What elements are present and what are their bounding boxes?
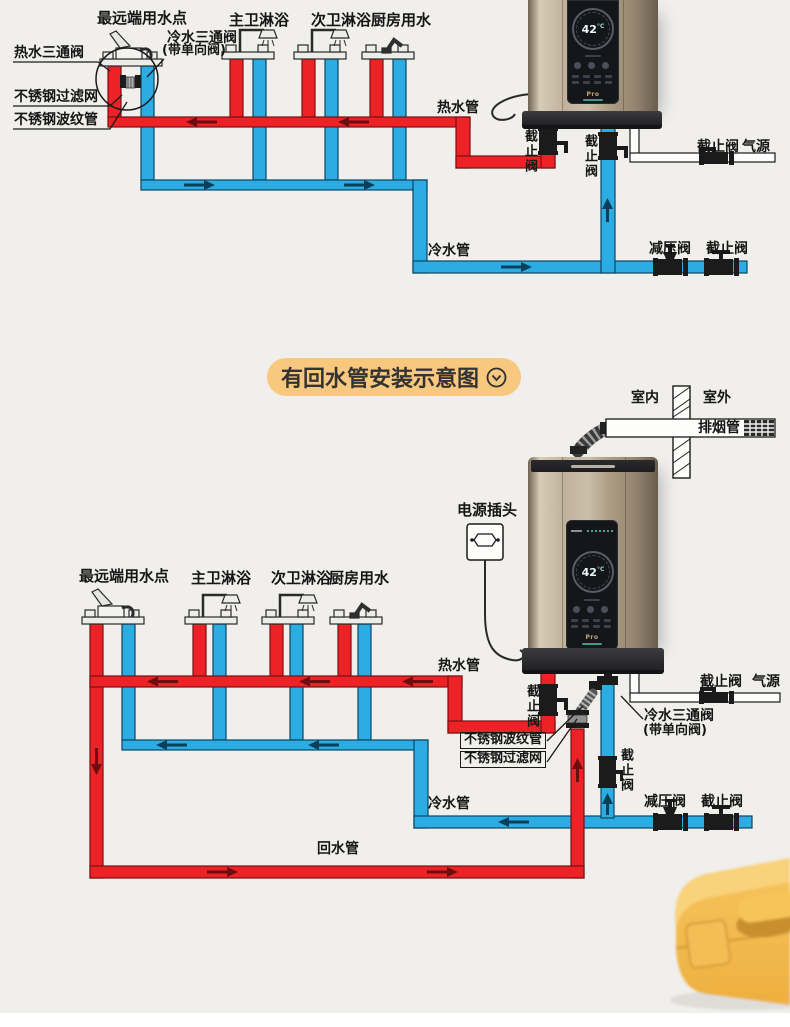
label-second-shower: 次卫淋浴 <box>271 570 331 587</box>
pipes-canvas <box>0 0 790 1027</box>
label-stop-valve-hot: 截止阀 <box>521 129 536 174</box>
panel-seam <box>623 0 624 116</box>
temperature-value: 42 <box>582 566 597 579</box>
label-farthest-point: 最远端用水点 <box>79 568 169 585</box>
brand-text: Pro <box>567 91 619 98</box>
touch-keys <box>571 619 611 628</box>
label-master-shower: 主卫淋浴 <box>191 570 251 587</box>
brand-text: Pro <box>566 634 618 641</box>
label-stop-valve-hot: 截止阀 <box>523 684 538 729</box>
section-title-text: 有回水管安装示意图 <box>281 361 479 393</box>
yellow-case-photo <box>670 858 790 1010</box>
label-farthest-point: 最远端用水点 <box>97 10 187 27</box>
label-return-pipe: 回水管 <box>317 841 359 857</box>
label-outdoor: 室外 <box>703 390 731 406</box>
heater-base <box>522 111 662 129</box>
label-master-shower: 主卫淋浴 <box>229 12 289 29</box>
temperature-dial: 42°C <box>572 8 614 50</box>
heater-top-band <box>531 460 655 472</box>
heater-display: 42°C Pro <box>566 520 618 650</box>
label-stop-valve-main: 截止阀 <box>701 794 743 810</box>
label-stop-valve-gas: 截止阀 <box>700 674 742 690</box>
label-hot-pipe: 热水管 <box>438 658 480 674</box>
label-hot-tee-valve: 热水三通阀 <box>14 45 84 61</box>
d2-fixtures <box>82 589 382 624</box>
temperature-unit: °C <box>597 566 604 573</box>
temperature-unit: °C <box>597 23 604 30</box>
touch-buttons <box>574 62 609 69</box>
brand-logo <box>571 465 615 468</box>
chevron-down-circle-icon <box>486 367 507 388</box>
panel-seam <box>562 0 563 116</box>
label-power-plug: 电源插头 <box>457 502 517 519</box>
label-second-shower: 次卫淋浴 <box>311 12 371 29</box>
temperature-value: 42 <box>582 23 597 36</box>
label-cold-tee-note: (带单向阀) <box>643 724 707 739</box>
label-cold-pipe: 冷水管 <box>428 796 470 812</box>
label-hot-pipe: 热水管 <box>437 100 479 116</box>
label-kitchen: 厨房用水 <box>329 570 389 587</box>
label-gas-source: 气源 <box>742 139 770 155</box>
label-pressure-valve: 减压阀 <box>649 241 691 257</box>
label-stop-valve-gas: 截止阀 <box>697 139 739 155</box>
panel-seam <box>625 457 626 654</box>
heater-display: 42°C Pro <box>567 0 619 104</box>
label-stop-valve-cold: 截止阀 <box>581 134 596 179</box>
label-exhaust-pipe: 排烟管 <box>698 420 740 436</box>
label-corrugated: 不锈钢波纹管 <box>460 732 546 749</box>
label-cold-pipe: 冷水管 <box>428 243 470 259</box>
label-filter: 不锈钢过滤网 <box>460 751 546 768</box>
section-title-pill: 有回水管安装示意图 <box>267 358 521 396</box>
heater-base <box>522 648 664 674</box>
touch-buttons <box>573 606 608 613</box>
label-kitchen: 厨房用水 <box>371 12 431 29</box>
label-filter: 不锈钢过滤网 <box>14 89 98 105</box>
label-stop-valve-main: 截止阀 <box>706 241 748 257</box>
label-stop-valve-cold: 截止阀 <box>617 748 632 793</box>
status-indicators <box>571 530 613 532</box>
label-indoor: 室内 <box>631 390 659 406</box>
installation-diagram-page: 42°C Pro 42°C Pro 最远端用水点 主卫淋浴 次卫淋浴 厨房用水 … <box>0 0 790 1027</box>
panel-seam <box>562 457 563 654</box>
touch-keys <box>572 75 612 84</box>
temperature-dial: 42°C <box>572 551 614 593</box>
label-corrugated: 不锈钢波纹管 <box>14 112 98 128</box>
page-bottom-white-band <box>0 1013 790 1027</box>
label-cold-tee-valve: 冷水三通阀 <box>644 708 714 724</box>
d2-power-outlet <box>467 524 524 660</box>
label-pressure-valve: 减压阀 <box>644 794 686 810</box>
label-gas-source: 气源 <box>752 674 780 690</box>
label-cold-tee-note: (带单向阀) <box>162 44 226 59</box>
